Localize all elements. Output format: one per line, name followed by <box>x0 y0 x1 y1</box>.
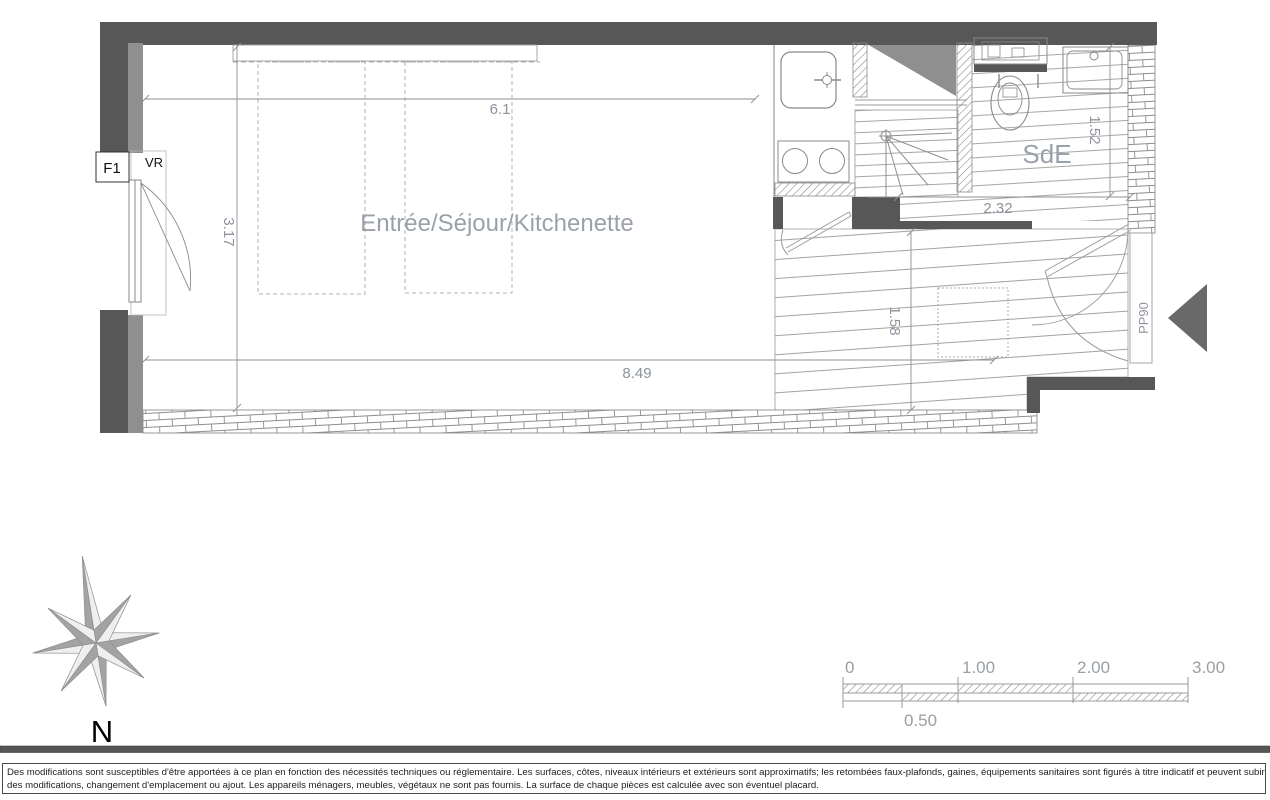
dim-left: 3.17 <box>220 217 237 246</box>
bathroom-label: SdE <box>1022 139 1071 169</box>
dim-bathroom-width: 2.32 <box>983 200 1012 217</box>
disclaimer-box: Des modifications sont susceptibles d'êt… <box>2 763 1266 794</box>
scale-3: 3.00 <box>1192 658 1225 677</box>
main-room-label: Entrée/Séjour/Kitchenette <box>360 210 634 237</box>
exterior-wall-right <box>1128 45 1155 233</box>
entrance-arrow-icon <box>1168 284 1207 352</box>
scale-2: 2.00 <box>1077 658 1110 677</box>
shutter-label: VR <box>145 155 163 170</box>
disclaimer-line-1: Des modifications sont susceptibles d'êt… <box>7 766 1265 779</box>
frame-bottom-bar <box>0 746 1270 753</box>
scale-1: 1.00 <box>962 658 995 677</box>
window-label-box: F1 VR <box>96 152 163 182</box>
scale-bar: 0 1.00 2.00 3.00 0.50 <box>843 658 1225 730</box>
floor-plan-drawing: F1 VR <box>0 0 1270 760</box>
entrance-door-label: PP90 <box>1136 302 1151 334</box>
duct-shade <box>867 44 956 96</box>
dim-top: 6.1 <box>490 101 511 118</box>
dim-bathroom-height: 1.52 <box>1086 115 1103 144</box>
disclaimer-line-2: des modifications, changement d'emplacem… <box>7 779 1265 792</box>
scale-0: 0 <box>845 658 854 677</box>
window-type-label: F1 <box>103 160 121 177</box>
dim-entry: 1.58 <box>886 306 903 335</box>
window-f1 <box>129 151 191 315</box>
furniture-dashed <box>258 62 512 294</box>
counter-hatch <box>775 183 855 196</box>
compass-rose-icon <box>19 546 169 716</box>
cooktop <box>778 141 849 182</box>
north-label: N <box>91 714 113 749</box>
dim-bottom: 8.49 <box>622 365 651 382</box>
kitchenette <box>774 45 855 197</box>
scale-half: 0.50 <box>904 711 937 730</box>
ceiling-drop <box>233 45 540 62</box>
shower-pan <box>855 100 967 197</box>
floor-plan-page: F1 VR <box>0 0 1270 800</box>
exterior-wall-bottom <box>143 410 1037 433</box>
